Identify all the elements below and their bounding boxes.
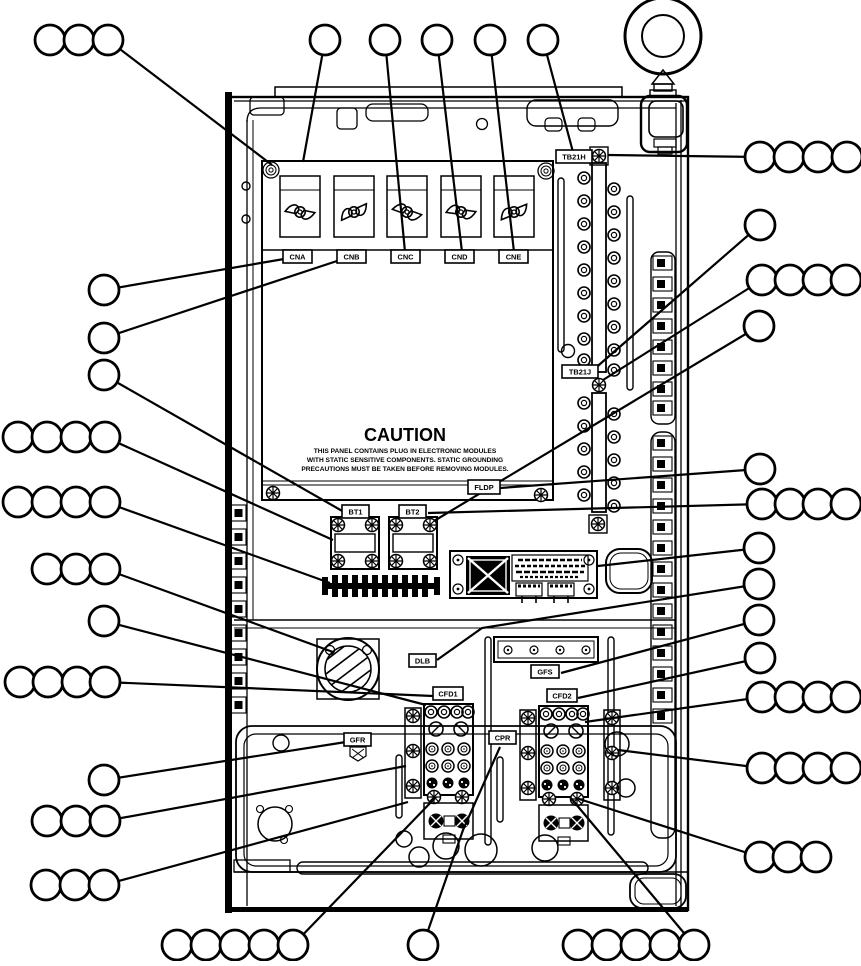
leader-line-bottom-left-group bbox=[293, 797, 436, 945]
parts-diagram-page: CAUTION THIS PANEL CONTAINS PLUG IN ELEC… bbox=[0, 0, 861, 961]
callout-circle bbox=[89, 323, 119, 353]
leader-line-right-3 bbox=[500, 469, 760, 488]
caution-line2: WITH STATIC SENSITIVE COMPONENTS. STATIC… bbox=[307, 457, 503, 464]
label-text-cfd2: CFD2 bbox=[552, 691, 571, 700]
label-text-fldp: FLDP bbox=[474, 483, 493, 492]
callout-circle bbox=[744, 533, 774, 563]
callout-circle bbox=[621, 930, 651, 960]
callout-circle bbox=[33, 667, 63, 697]
label-text-cpr: CPR bbox=[495, 733, 511, 742]
contactor-cfd1 bbox=[405, 704, 474, 843]
callout-circle bbox=[475, 25, 505, 55]
callout-circle bbox=[747, 265, 777, 295]
caution-line1: THIS PANEL CONTAINS PLUG IN ELECTRONIC M… bbox=[314, 448, 497, 455]
callout-circle bbox=[60, 870, 90, 900]
callout-circle bbox=[89, 765, 119, 795]
switch-module-row bbox=[280, 176, 534, 237]
label-text-cne: CNE bbox=[506, 252, 522, 261]
leader-line-left-row-b bbox=[105, 502, 330, 583]
terminal-strip-tb21h bbox=[558, 147, 633, 390]
callout-circle bbox=[745, 842, 775, 872]
panel-cutout bbox=[606, 549, 652, 593]
callout-circle bbox=[775, 753, 805, 783]
label-text-cna: CNA bbox=[289, 252, 306, 261]
callout-circle bbox=[408, 930, 438, 960]
callout-circle bbox=[90, 422, 120, 452]
callout-circle bbox=[162, 930, 192, 960]
callout-circle bbox=[89, 275, 119, 305]
callout-circle bbox=[528, 25, 558, 55]
callout-circle bbox=[32, 806, 62, 836]
callout-circle bbox=[679, 930, 709, 960]
warning-decal bbox=[450, 551, 597, 603]
label-text-bt2: BT2 bbox=[406, 507, 420, 516]
callout-circle bbox=[563, 930, 593, 960]
module-bt1 bbox=[331, 517, 379, 569]
callout-circle bbox=[775, 489, 805, 519]
callout-circle bbox=[803, 265, 833, 295]
callout-circle bbox=[32, 422, 62, 452]
callout-circle bbox=[35, 25, 65, 55]
callout-circle bbox=[249, 930, 279, 960]
panel-screw bbox=[538, 163, 554, 179]
callout-circle bbox=[220, 930, 250, 960]
label-text-gfr: GFR bbox=[350, 735, 366, 744]
caution-line3: PRECAUTIONS MUST BE TAKEN BEFORE REMOVIN… bbox=[301, 466, 508, 473]
callout-circle bbox=[747, 753, 777, 783]
leader-line-left-row-d bbox=[105, 682, 433, 696]
lifting-eyebolt bbox=[625, 0, 701, 154]
callout-circle bbox=[745, 142, 775, 172]
callout-circle bbox=[32, 487, 62, 517]
callout-circle bbox=[775, 265, 805, 295]
callout-circle bbox=[592, 930, 622, 960]
leader-line-left-row-a bbox=[105, 437, 333, 540]
label-text-cfd1: CFD1 bbox=[438, 689, 457, 698]
callout-circle bbox=[90, 554, 120, 584]
module-bt2 bbox=[389, 517, 437, 569]
callout-circle bbox=[831, 753, 861, 783]
label-text-cnd: CND bbox=[451, 252, 468, 261]
callout-circle bbox=[832, 142, 861, 172]
gfr-device bbox=[350, 747, 366, 761]
callout-circle bbox=[831, 265, 861, 295]
callout-circle bbox=[90, 667, 120, 697]
callout-circle bbox=[61, 806, 91, 836]
callout-circle bbox=[5, 667, 35, 697]
right-terminal-rail bbox=[651, 252, 675, 838]
callout-circle bbox=[93, 25, 123, 55]
callout-circle bbox=[650, 930, 680, 960]
callout-circle bbox=[64, 25, 94, 55]
leader-line-left-row-c bbox=[105, 569, 333, 652]
callout-circle bbox=[803, 489, 833, 519]
label-text-gfs: GFS bbox=[537, 667, 552, 676]
switch-module-cnb bbox=[334, 176, 374, 237]
leader-line-top-2 bbox=[385, 40, 405, 252]
callout-circle bbox=[90, 487, 120, 517]
callout-circle bbox=[62, 667, 92, 697]
callout-circle bbox=[773, 842, 803, 872]
switch-module-cne bbox=[494, 176, 534, 237]
callout-circle bbox=[744, 569, 774, 599]
callout-circle bbox=[747, 682, 777, 712]
caution-text: CAUTION THIS PANEL CONTAINS PLUG IN ELEC… bbox=[301, 425, 508, 473]
leader-line-right-7 bbox=[578, 658, 760, 698]
leader-line-right-row-a bbox=[608, 155, 760, 157]
leader-line-left-row-e bbox=[105, 766, 406, 821]
callout-circle bbox=[61, 422, 91, 452]
heatsink-fins bbox=[322, 575, 440, 597]
callout-circle bbox=[745, 643, 775, 673]
callout-circle bbox=[803, 142, 833, 172]
switch-module-cna bbox=[280, 176, 320, 237]
switch-module-cnd bbox=[441, 176, 481, 237]
callout-circle bbox=[422, 25, 452, 55]
callout-circle bbox=[831, 682, 861, 712]
caution-title: CAUTION bbox=[364, 425, 446, 445]
label-text-dlb: DLB bbox=[415, 656, 430, 665]
cabinet-left-edge bbox=[225, 92, 232, 913]
callout-circle bbox=[803, 682, 833, 712]
leader-line-bottom-center bbox=[423, 747, 500, 945]
callout-circle bbox=[775, 682, 805, 712]
callout-circle bbox=[803, 753, 833, 783]
leader-line-left-1 bbox=[104, 259, 284, 290]
leader-line-top-left-group bbox=[108, 40, 272, 165]
leader-line-right-4 bbox=[598, 548, 759, 566]
callout-circle bbox=[32, 554, 62, 584]
callout-circle bbox=[191, 930, 221, 960]
callout-circle bbox=[745, 210, 775, 240]
callout-circle bbox=[744, 311, 774, 341]
top-rail bbox=[247, 87, 676, 131]
callout-circle bbox=[747, 489, 777, 519]
equipment-panel-diagram: CAUTION THIS PANEL CONTAINS PLUG IN ELEC… bbox=[0, 0, 861, 961]
label-text-bt1: BT1 bbox=[349, 507, 363, 516]
callout-circle bbox=[89, 360, 119, 390]
callout-circle bbox=[370, 25, 400, 55]
panel-artwork: CAUTION THIS PANEL CONTAINS PLUG IN ELEC… bbox=[225, 0, 701, 913]
gfs-terminal-bar bbox=[494, 637, 598, 662]
leader-line-left-2 bbox=[104, 260, 340, 338]
callout-circle bbox=[801, 842, 831, 872]
label-text-cnc: CNC bbox=[397, 252, 414, 261]
callout-circle bbox=[90, 806, 120, 836]
callout-circle bbox=[3, 422, 33, 452]
callout-circle bbox=[61, 554, 91, 584]
switch-module-cnc bbox=[387, 176, 427, 237]
callout-circle bbox=[774, 142, 804, 172]
callout-circle bbox=[310, 25, 340, 55]
callout-circle bbox=[278, 930, 308, 960]
label-text-tb21h: TB21H bbox=[562, 152, 585, 161]
callout-circle bbox=[89, 606, 119, 636]
round-connector bbox=[316, 625, 390, 710]
label-text-cnb: CNB bbox=[343, 252, 359, 261]
callout-circle bbox=[831, 489, 861, 519]
label-text-tb21j: TB21J bbox=[569, 367, 591, 376]
callout-circle bbox=[89, 870, 119, 900]
leader-line-right-row-e bbox=[618, 750, 762, 768]
callout-circle bbox=[3, 487, 33, 517]
left-terminal-tabs bbox=[231, 505, 246, 713]
callout-circle bbox=[745, 454, 775, 484]
callout-circle bbox=[744, 605, 774, 635]
callout-circle bbox=[31, 870, 61, 900]
callout-circle bbox=[61, 487, 91, 517]
